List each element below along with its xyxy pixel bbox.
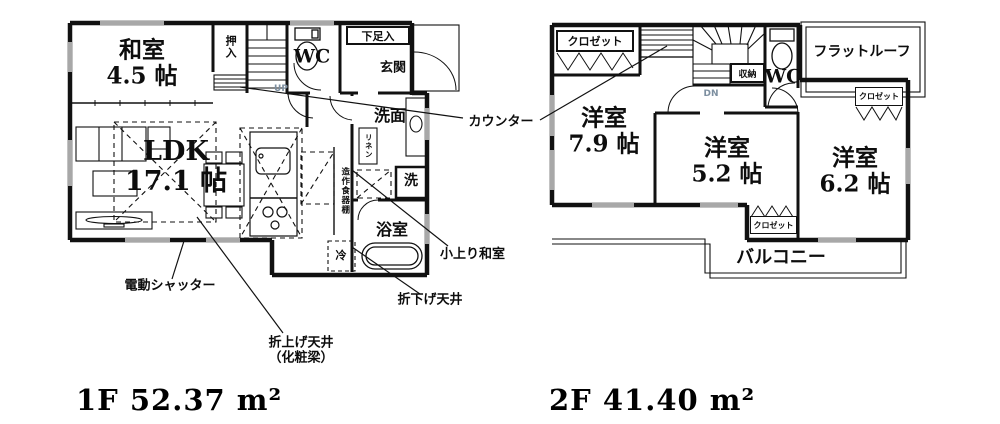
room-label-senmen: 洗面: [374, 107, 406, 125]
room-label-bath: 浴室: [376, 221, 408, 239]
room-label-wc-2f: WC: [765, 66, 801, 87]
storage-box: 収納: [730, 63, 765, 83]
floor-area-1f: 1F 52.37 m²: [76, 383, 282, 417]
stove-icon: [263, 207, 287, 229]
closet-right-box: クロゼット: [855, 87, 903, 106]
annotation-oriage: 折上げ天井 （化粧梁）: [268, 336, 333, 365]
annotation-shutter: 電動シャッター: [124, 280, 215, 295]
bathtub-icon: [362, 243, 422, 269]
leader-orisage: [352, 247, 420, 294]
room-label-west-52: 洋室 5.2 帖: [691, 135, 762, 187]
fridge-label: 冷: [336, 250, 347, 262]
kitchen-counter: [250, 132, 297, 236]
vanity-icon: [406, 98, 426, 156]
closet-bottom-box: クロゼット: [750, 216, 797, 234]
room-label-ldk: LDK 17.1 帖: [125, 137, 227, 197]
room-label-genkan: 玄関: [380, 62, 406, 77]
kitchen-sink-icon: [256, 148, 290, 174]
annotation-orisage: 折下げ天井: [397, 294, 462, 309]
cupboard-label: 造作食器棚: [339, 167, 349, 215]
stairs-down-label: DN: [703, 89, 718, 99]
stairs-up-label: UP: [274, 84, 288, 94]
room-label-west-62: 洋室 6.2 帖: [819, 145, 890, 197]
floor-plan-page: 和室 4.5 帖 LDK 17.1 帖 押入 WC 下足入 玄関 洗面 リネン …: [0, 0, 1000, 424]
room-label-oshiire: 押入: [224, 35, 236, 59]
shoe-cabinet-box: 下足入: [346, 26, 410, 45]
annotation-koagari: 小上り和室: [440, 243, 505, 262]
room-label-washitsu: 和室 4.5 帖: [106, 37, 177, 89]
washer-label: 洗: [404, 174, 418, 190]
linen-closet-label: リネン: [364, 133, 372, 159]
room-label-west-79: 洋室 7.9 帖: [568, 105, 639, 157]
stairs-1f: [247, 23, 287, 88]
balcony-label: バルコニー: [736, 248, 826, 268]
flat-roof-label: フラットルーフ: [813, 45, 910, 61]
floor-area-2f: 2F 41.40 m²: [549, 383, 755, 417]
balcony-outline: [552, 239, 906, 278]
tv-board-icon: [76, 212, 152, 229]
annotation-counter: カウンター: [468, 116, 533, 131]
leader-shutter: [172, 241, 184, 279]
room-label-wc-1f: WC: [294, 46, 330, 67]
toilet-icon-2f: [770, 29, 794, 69]
closet-top-left-box: クロゼット: [556, 30, 634, 52]
washitsu-sliding-wall: [70, 100, 213, 106]
